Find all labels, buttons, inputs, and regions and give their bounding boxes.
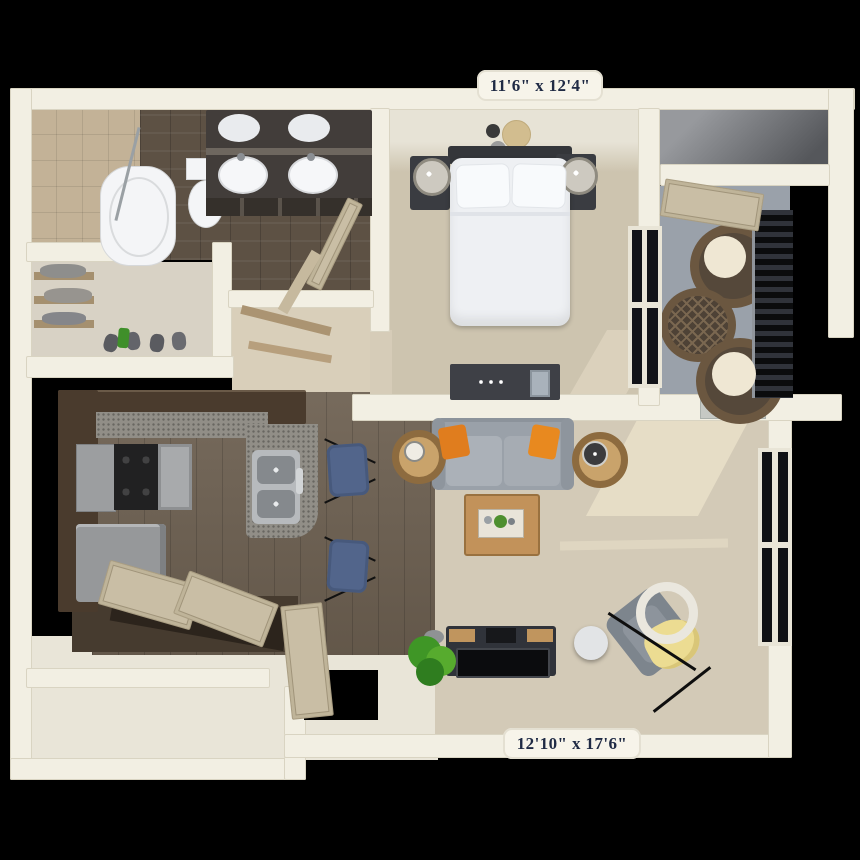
- chair-cushion: [712, 352, 756, 396]
- throw-pillow-orange: [527, 424, 560, 460]
- living-room-dimension-label: 12'10" x 17'6": [503, 728, 641, 759]
- faucet-left: [237, 153, 245, 161]
- sink-bowl: [257, 490, 295, 518]
- wall-closet-bottom: [26, 356, 234, 378]
- bedroom-dimension-label: 11'6" x 12'4": [477, 70, 603, 101]
- duvet-fold: [450, 212, 570, 216]
- wall-top: [10, 88, 855, 110]
- clothes-pile: [40, 264, 86, 278]
- bedroom-dimension-text: 11'6" x 12'4": [490, 76, 591, 96]
- round-white-table: [574, 626, 608, 660]
- wall-plate-tan: [502, 120, 531, 149]
- sink-bowl: [257, 456, 295, 484]
- console-center: [486, 628, 516, 643]
- faucet-right: [307, 153, 315, 161]
- clothes-pile: [44, 288, 92, 303]
- barstool: [326, 443, 370, 498]
- plant-foliage: [416, 658, 444, 686]
- throw-pillow-orange: [437, 424, 470, 460]
- living-room-dimension-text: 12'10" x 17'6": [517, 734, 627, 754]
- barstool: [326, 539, 370, 594]
- console-wood-top: [527, 629, 553, 642]
- living-window-mullion: [758, 542, 792, 548]
- floorplan-image: 11'6" x 12'4" 12'10" x 17'6": [0, 0, 860, 860]
- oven-door: [76, 444, 116, 512]
- chair-cushion: [704, 236, 746, 278]
- microwave: [158, 444, 192, 510]
- tray-plant: [494, 515, 507, 528]
- bedroom-door-gap-floor: [370, 330, 392, 396]
- balcony-railing: [752, 210, 793, 398]
- sink-faucet: [296, 468, 303, 494]
- wall-right-upper: [828, 88, 854, 338]
- side-table-lamp: [404, 441, 425, 462]
- table-lamp: [413, 158, 451, 196]
- cooktop: [114, 444, 158, 510]
- bed-pillow: [455, 163, 511, 209]
- side-table-lamp: [582, 441, 608, 467]
- vanity-mirror-edge: [206, 148, 372, 155]
- bedroom-window-mullion: [628, 302, 662, 308]
- storage-closet-floor: [660, 108, 832, 170]
- console-wood-top: [449, 629, 475, 642]
- clothes-pile: [42, 312, 86, 325]
- wall-plate-dark: [486, 124, 500, 138]
- tray-item: [484, 516, 492, 524]
- tray-item: [508, 518, 515, 525]
- dresser-decor: [476, 378, 506, 386]
- vanity-sink-right: [288, 156, 338, 194]
- green-storage-item: [117, 328, 130, 349]
- sink-reflection-left: [218, 114, 260, 142]
- tv-screen: [456, 648, 550, 678]
- shoe: [171, 331, 187, 350]
- sink-reflection-right: [288, 114, 330, 142]
- vanity-sink-left: [218, 156, 268, 194]
- wall-linen-top: [228, 290, 374, 308]
- dresser-picture-frame: [530, 370, 550, 397]
- countertop: [96, 412, 268, 438]
- bed-pillow: [511, 163, 567, 209]
- wall-entry-top: [26, 668, 270, 688]
- wall-bottom-left: [10, 758, 306, 780]
